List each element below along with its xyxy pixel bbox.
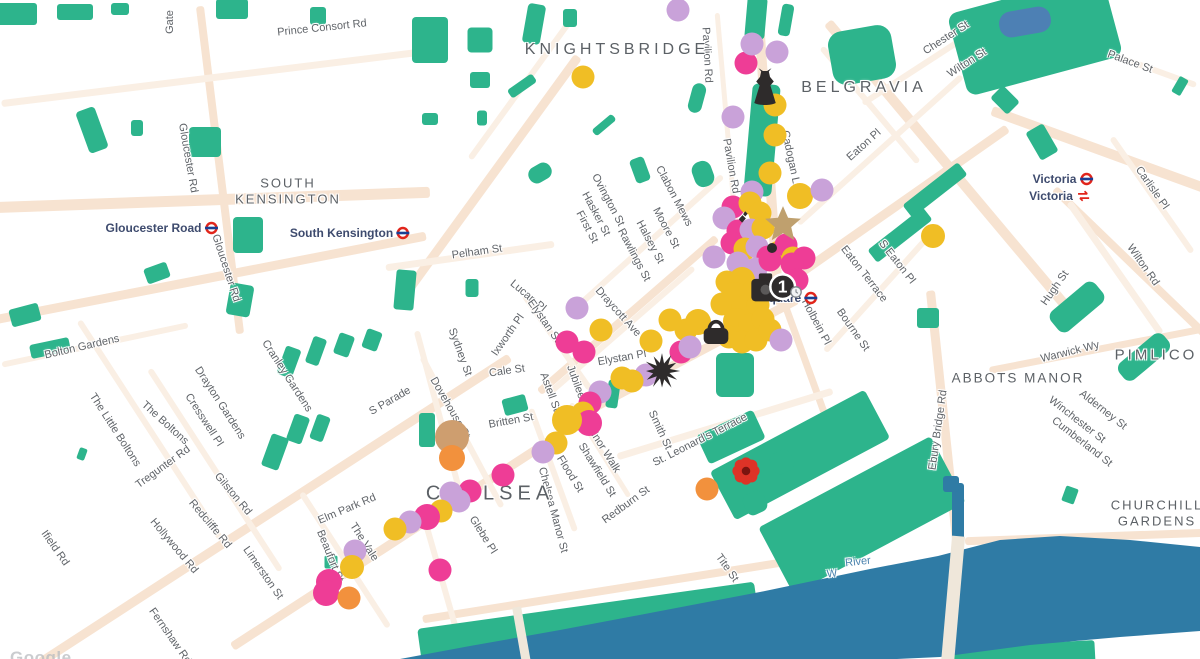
bag-icon[interactable] xyxy=(696,311,736,351)
star-icon[interactable] xyxy=(762,203,804,245)
burst-icon[interactable] xyxy=(643,352,681,390)
svg-text:1: 1 xyxy=(778,277,788,297)
clock-icon[interactable] xyxy=(790,286,803,299)
dress-icon[interactable] xyxy=(742,65,788,111)
lipstick-icon[interactable] xyxy=(735,208,753,226)
poi-icons-layer: 1 xyxy=(0,0,1200,659)
map-canvas[interactable]: GatePrince Consort RdGloucester RdGlouce… xyxy=(0,0,1200,659)
google-logo: Google xyxy=(10,648,72,659)
flower-icon[interactable] xyxy=(731,456,761,486)
blob-icon[interactable] xyxy=(766,242,778,254)
